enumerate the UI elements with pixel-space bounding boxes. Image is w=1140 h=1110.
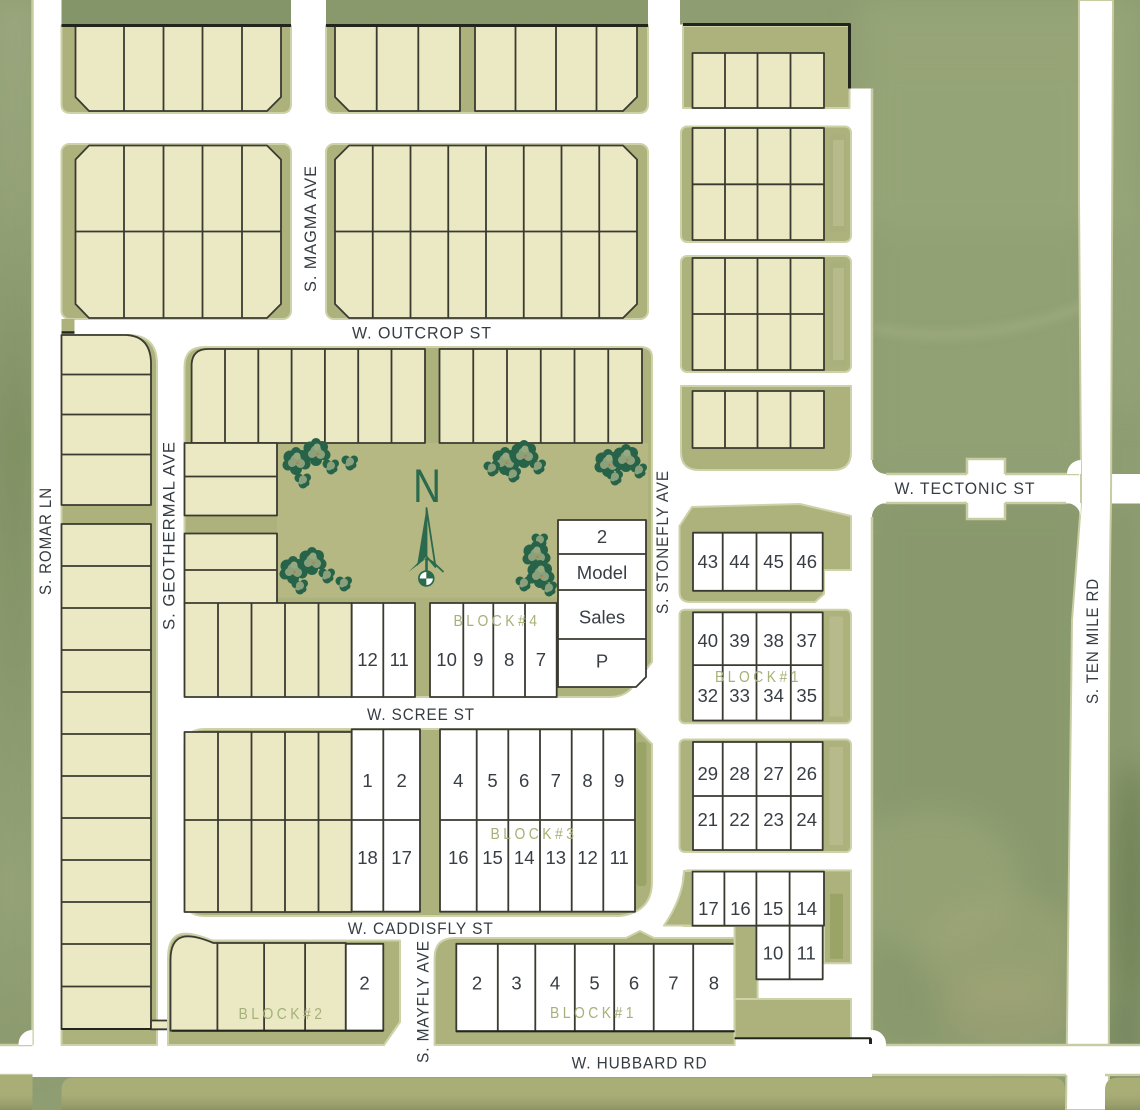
- svg-text:5: 5: [487, 770, 497, 791]
- svg-text:17: 17: [698, 898, 719, 919]
- svg-text:16: 16: [730, 898, 751, 919]
- svg-text:2: 2: [396, 770, 406, 791]
- svg-text:S. ROMAR LN: S. ROMAR LN: [36, 487, 55, 595]
- svg-text:1: 1: [362, 770, 372, 791]
- svg-text:15: 15: [482, 847, 503, 868]
- svg-text:7: 7: [668, 973, 678, 994]
- svg-text:Model: Model: [577, 562, 627, 583]
- svg-text:P: P: [596, 651, 608, 672]
- svg-text:W. TECTONIC ST: W. TECTONIC ST: [895, 479, 1036, 498]
- svg-text:23: 23: [763, 809, 784, 830]
- svg-text:43: 43: [698, 551, 719, 572]
- svg-text:3: 3: [511, 973, 521, 994]
- svg-text:S. GEOTHERMAL AVE: S. GEOTHERMAL AVE: [160, 441, 179, 630]
- svg-text:S. MAYFLY AVE: S. MAYFLY AVE: [414, 940, 433, 1063]
- svg-text:6: 6: [519, 770, 529, 791]
- svg-text:13: 13: [546, 847, 567, 868]
- svg-text:46: 46: [796, 551, 817, 572]
- svg-text:21: 21: [698, 809, 719, 830]
- svg-text:12: 12: [357, 649, 378, 670]
- svg-text:2: 2: [597, 526, 607, 547]
- svg-text:10: 10: [436, 649, 457, 670]
- svg-text:W. HUBBARD RD: W. HUBBARD RD: [572, 1054, 708, 1073]
- svg-text:38: 38: [763, 630, 784, 651]
- svg-text:BLOCK#3: BLOCK#3: [491, 826, 578, 843]
- svg-text:6: 6: [629, 973, 639, 994]
- svg-text:18: 18: [357, 847, 378, 868]
- svg-text:32: 32: [698, 685, 719, 706]
- svg-text:16: 16: [448, 847, 469, 868]
- svg-text:8: 8: [582, 770, 592, 791]
- svg-text:29: 29: [698, 763, 719, 784]
- svg-text:24: 24: [796, 809, 817, 830]
- svg-text:10: 10: [763, 943, 784, 964]
- svg-text:9: 9: [473, 649, 483, 670]
- svg-text:15: 15: [763, 898, 784, 919]
- svg-text:4: 4: [453, 770, 463, 791]
- svg-text:35: 35: [796, 685, 817, 706]
- svg-text:26: 26: [796, 763, 817, 784]
- svg-text:BLOCK#1: BLOCK#1: [715, 669, 802, 686]
- svg-text:S. TEN MILE RD: S. TEN MILE RD: [1083, 578, 1102, 704]
- svg-text:BLOCK#2: BLOCK#2: [239, 1006, 326, 1023]
- svg-text:12: 12: [577, 847, 598, 868]
- svg-text:14: 14: [797, 898, 818, 919]
- svg-text:8: 8: [504, 649, 514, 670]
- svg-text:11: 11: [610, 847, 629, 868]
- svg-text:4: 4: [550, 973, 560, 994]
- svg-text:W. CADDISFLY ST: W. CADDISFLY ST: [348, 919, 494, 938]
- svg-text:8: 8: [709, 973, 719, 994]
- svg-text:S. MAGMA AVE: S. MAGMA AVE: [301, 165, 320, 292]
- svg-text:N: N: [413, 460, 441, 512]
- svg-text:W. OUTCROP ST: W. OUTCROP ST: [352, 324, 492, 343]
- svg-text:7: 7: [536, 649, 546, 670]
- svg-text:27: 27: [763, 763, 784, 784]
- svg-text:W. SCREE ST: W. SCREE ST: [367, 705, 475, 724]
- svg-text:BLOCK#4: BLOCK#4: [454, 613, 541, 630]
- svg-text:9: 9: [614, 770, 624, 791]
- svg-text:5: 5: [589, 973, 599, 994]
- svg-text:37: 37: [796, 630, 817, 651]
- svg-text:7: 7: [551, 770, 561, 791]
- svg-text:33: 33: [729, 685, 750, 706]
- svg-text:2: 2: [359, 973, 369, 994]
- svg-text:40: 40: [698, 630, 719, 651]
- svg-text:39: 39: [729, 630, 750, 651]
- svg-text:22: 22: [729, 809, 750, 830]
- svg-text:28: 28: [729, 763, 750, 784]
- svg-text:2: 2: [472, 973, 482, 994]
- svg-text:11: 11: [797, 943, 816, 964]
- svg-text:45: 45: [763, 551, 784, 572]
- svg-text:14: 14: [514, 847, 535, 868]
- svg-text:Sales: Sales: [579, 607, 625, 628]
- svg-text:S. STONEFLY AVE: S. STONEFLY AVE: [653, 470, 672, 614]
- svg-text:34: 34: [763, 685, 784, 706]
- svg-text:BLOCK#1: BLOCK#1: [550, 1005, 637, 1022]
- svg-text:44: 44: [729, 551, 750, 572]
- svg-text:11: 11: [390, 649, 409, 670]
- svg-text:17: 17: [391, 847, 412, 868]
